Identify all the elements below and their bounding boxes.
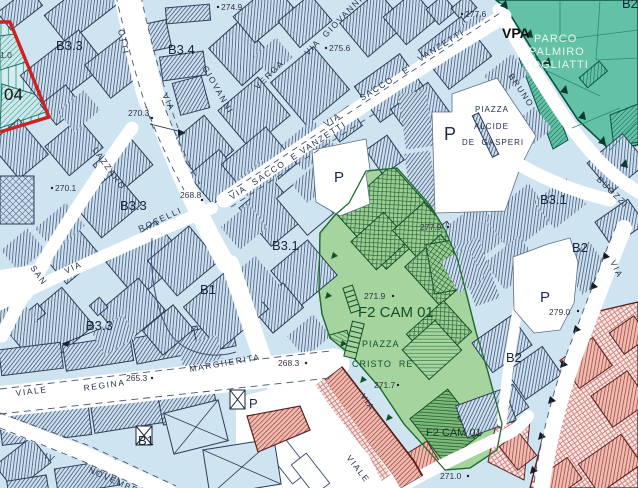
svg-text:B3.4: B3.4 xyxy=(168,42,195,57)
svg-text:VPA: VPA xyxy=(502,25,530,41)
svg-text:270.1: 270.1 xyxy=(55,183,77,193)
svg-text:270.3: 270.3 xyxy=(128,108,150,118)
svg-text:B3.1: B3.1 xyxy=(540,192,567,207)
svg-text:P: P xyxy=(540,289,550,306)
svg-text:279.0: 279.0 xyxy=(549,307,571,317)
svg-text:F2 CAM 01: F2 CAM 01 xyxy=(358,304,434,321)
svg-text:P: P xyxy=(249,396,258,411)
svg-text:CRISTO RE: CRISTO RE xyxy=(352,359,413,369)
svg-text:265.3: 265.3 xyxy=(126,373,148,383)
svg-text:B3.3: B3.3 xyxy=(56,38,83,53)
svg-text:04: 04 xyxy=(4,85,23,104)
svg-text:271.0: 271.0 xyxy=(440,471,462,481)
svg-text:B2: B2 xyxy=(572,240,588,255)
svg-text:271.7: 271.7 xyxy=(374,380,396,390)
svg-text:DE GASPERI: DE GASPERI xyxy=(462,138,524,147)
svg-text:P: P xyxy=(334,169,344,186)
svg-text:ALCIDE: ALCIDE xyxy=(474,122,509,131)
svg-text:277.6: 277.6 xyxy=(465,9,487,19)
svg-text:TOGLIATTI: TOGLIATTI xyxy=(524,59,589,71)
svg-text:B3.1: B3.1 xyxy=(272,238,299,253)
svg-text:B2: B2 xyxy=(622,0,638,11)
svg-text:268.8: 268.8 xyxy=(180,190,202,200)
svg-text:B3.3: B3.3 xyxy=(86,318,113,333)
svg-text:B1: B1 xyxy=(200,282,216,297)
svg-text:P: P xyxy=(444,124,456,144)
svg-text:268.3: 268.3 xyxy=(278,358,300,368)
svg-text:1.0: 1.0 xyxy=(0,50,12,60)
svg-text:271.9: 271.9 xyxy=(364,291,386,301)
svg-text:PARCO: PARCO xyxy=(534,33,577,45)
svg-text:F2 CAM 01: F2 CAM 01 xyxy=(426,427,482,439)
svg-text:PIAZZA: PIAZZA xyxy=(475,105,509,114)
svg-text:B3.3: B3.3 xyxy=(120,198,147,213)
svg-text:B1: B1 xyxy=(138,433,154,448)
svg-text:274.9: 274.9 xyxy=(221,2,243,12)
svg-text:B2: B2 xyxy=(506,350,522,365)
svg-text:277.9: 277.9 xyxy=(420,222,442,232)
svg-text:PALMIRO: PALMIRO xyxy=(529,46,585,58)
svg-text:275.6: 275.6 xyxy=(329,43,351,53)
svg-text:PIAZZA: PIAZZA xyxy=(362,339,400,349)
